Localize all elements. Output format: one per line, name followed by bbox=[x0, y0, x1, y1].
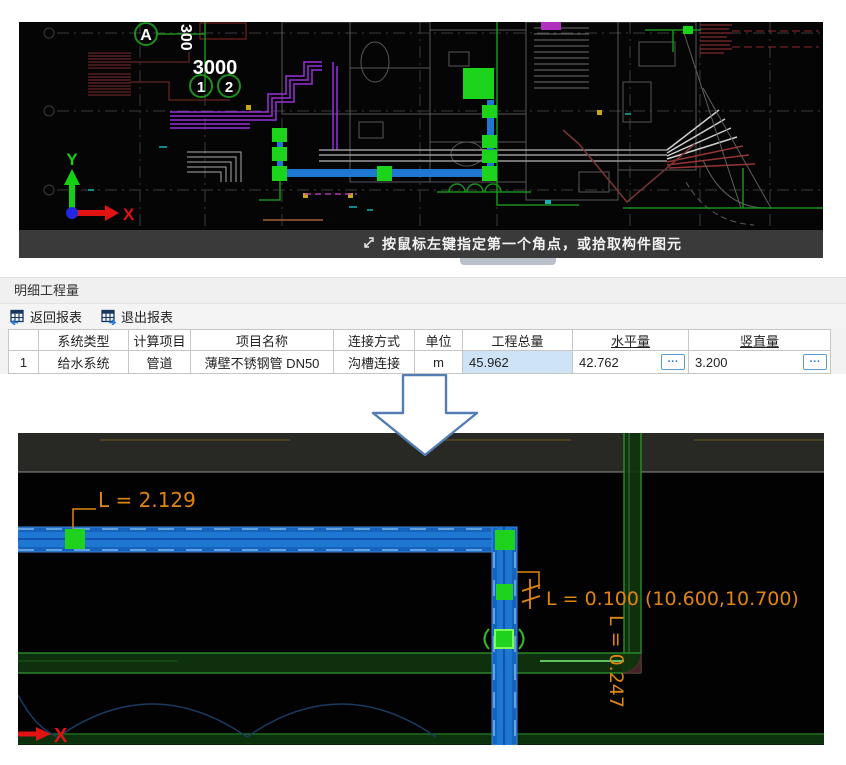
row-index-cell: 1 bbox=[9, 351, 39, 374]
ucs-y-label: Y bbox=[66, 150, 78, 169]
quantity-panel: 明细工程量 返回报表 bbox=[0, 277, 846, 374]
table-row[interactable]: 1 给水系统 管道 薄壁不锈钢管 DN50 沟槽连接 m 45.962 42.7… bbox=[9, 351, 831, 374]
vertical-detail-button[interactable]: ··· bbox=[803, 354, 827, 370]
item-name-cell[interactable]: 薄壁不锈钢管 DN50 bbox=[191, 351, 334, 374]
connection-cell[interactable]: 沟槽连接 bbox=[334, 351, 415, 374]
dim-vertical-length: L = 0.247 bbox=[605, 615, 627, 708]
grid-bubble-1-label: 1 bbox=[197, 79, 205, 96]
dim-3000-label: 3000 bbox=[193, 57, 238, 79]
calc-item-cell[interactable]: 管道 bbox=[129, 351, 191, 374]
return-report-button[interactable]: 返回报表 bbox=[9, 307, 82, 326]
splitter-handle[interactable] bbox=[460, 258, 556, 265]
horizontal-quantity-value: 42.762 bbox=[579, 355, 619, 370]
panel-title: 明细工程量 bbox=[0, 277, 846, 304]
column-header-vertical: 竖直量 bbox=[689, 330, 831, 351]
pick-corner-icon bbox=[360, 236, 376, 252]
column-header-total: 工程总量 bbox=[463, 330, 573, 351]
exit-report-label: 退出报表 bbox=[121, 307, 173, 326]
column-header-unit: 单位 bbox=[415, 330, 463, 351]
column-header-item-name: 项目名称 bbox=[191, 330, 334, 351]
ucs-x-label-detail: X bbox=[54, 725, 68, 745]
horizontal-detail-button[interactable]: ··· bbox=[661, 354, 685, 370]
status-bar: 按鼠标左键指定第一个角点，或拾取构件图元 bbox=[19, 230, 823, 258]
status-prompt: 按鼠标左键指定第一个角点，或拾取构件图元 bbox=[382, 234, 682, 254]
grid-bubble-a-label: A bbox=[140, 27, 152, 44]
wall-bottom bbox=[18, 734, 824, 744]
column-header-calc-item: 计算项目 bbox=[129, 330, 191, 351]
panel-toolbar: 返回报表 退出报表 bbox=[0, 304, 846, 328]
cad-detail-drawing: L = 2.129 L = 0.100 (10.600,10.700) L = … bbox=[18, 433, 824, 745]
system-type-cell[interactable]: 给水系统 bbox=[39, 351, 129, 374]
vertical-quantity-cell[interactable]: 3.200 ··· bbox=[689, 351, 831, 374]
unit-cell[interactable]: m bbox=[415, 351, 463, 374]
report-exit-icon bbox=[100, 308, 117, 325]
dim-300-label: 300 bbox=[177, 24, 194, 51]
dim-riser-length: L = 0.100 (10.600,10.700) bbox=[546, 588, 799, 610]
cad-overview-drawing: A 1 2 3000 300 bbox=[19, 22, 823, 230]
horizontal-quantity-cell[interactable]: 42.762 ··· bbox=[573, 351, 689, 374]
return-report-label: 返回报表 bbox=[30, 307, 82, 326]
cad-overview-viewport[interactable]: A 1 2 3000 300 bbox=[19, 22, 823, 258]
report-back-icon bbox=[9, 308, 26, 325]
vertical-quantity-value: 3.200 bbox=[695, 355, 728, 370]
app-window: A 1 2 3000 300 bbox=[0, 0, 846, 765]
zoom-in-arrow bbox=[371, 374, 481, 458]
column-header-index bbox=[9, 330, 39, 351]
grid-bubble-2-label: 2 bbox=[225, 79, 233, 96]
column-header-system-type: 系统类型 bbox=[39, 330, 129, 351]
quantity-table: 系统类型 计算项目 项目名称 连接方式 单位 工程总量 水平量 竖直量 1 给水… bbox=[8, 329, 831, 374]
column-header-horizontal: 水平量 bbox=[573, 330, 689, 351]
column-header-connection: 连接方式 bbox=[334, 330, 415, 351]
table-header-row: 系统类型 计算项目 项目名称 连接方式 单位 工程总量 水平量 竖直量 bbox=[9, 330, 831, 351]
exit-report-button[interactable]: 退出报表 bbox=[100, 307, 173, 326]
ucs-x-label: X bbox=[123, 205, 135, 224]
cad-detail-viewport[interactable]: L = 2.129 L = 0.100 (10.600,10.700) L = … bbox=[18, 433, 824, 745]
dim-horizontal-length: L = 2.129 bbox=[98, 488, 196, 512]
total-quantity-cell[interactable]: 45.962 bbox=[463, 351, 573, 374]
wall-horizontal[interactable] bbox=[18, 653, 641, 673]
